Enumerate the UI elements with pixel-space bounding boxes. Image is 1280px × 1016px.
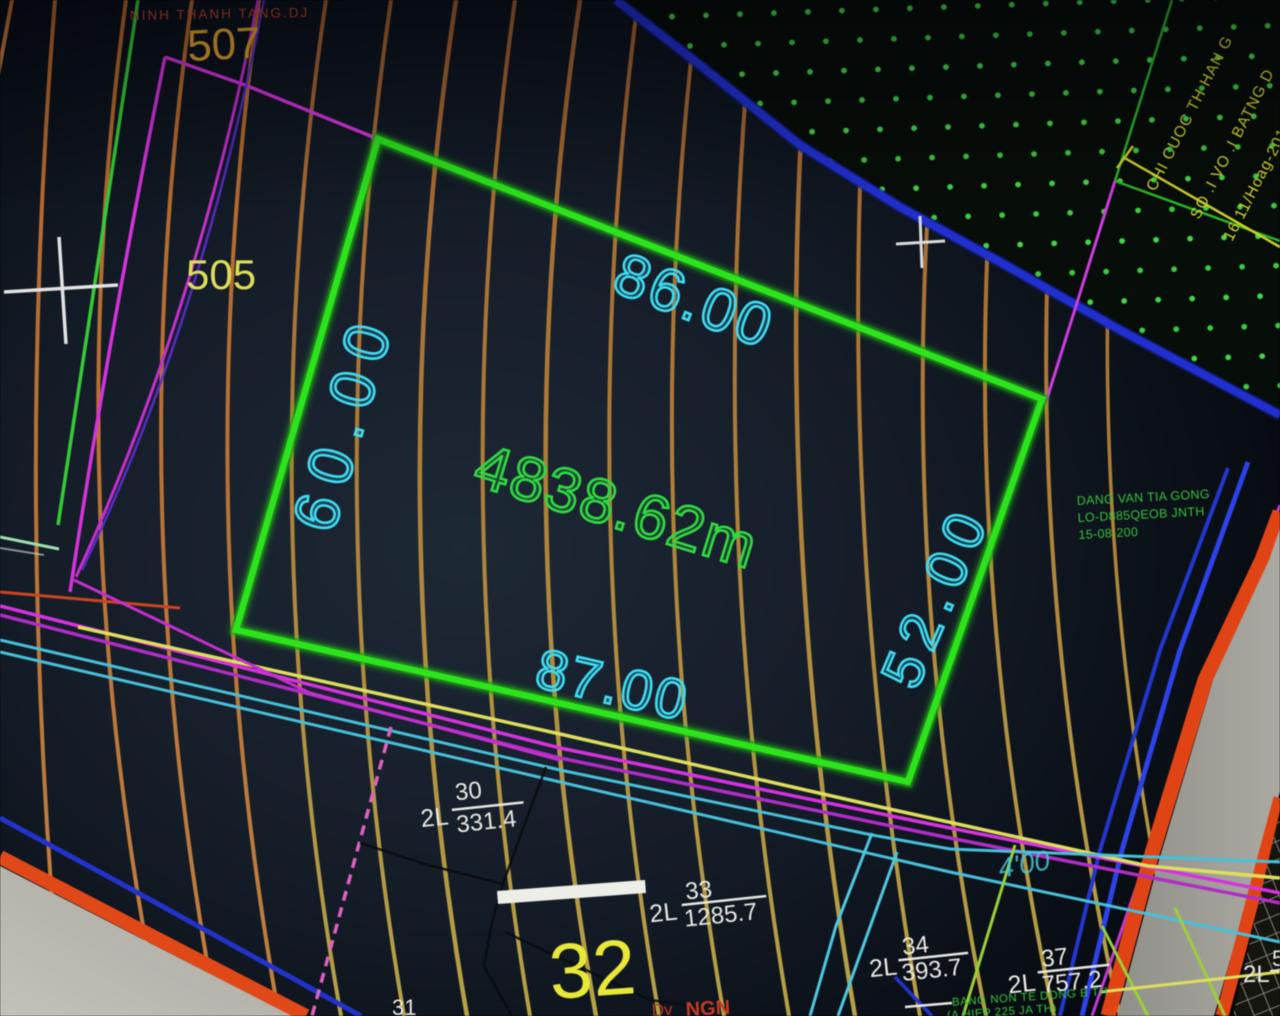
svg-text:NGN: NGN bbox=[685, 997, 731, 1016]
svg-text:2L: 2L bbox=[868, 952, 899, 983]
svg-text:2L: 2L bbox=[419, 802, 450, 833]
svg-text:31: 31 bbox=[392, 995, 416, 1016]
svg-text:Dv: Dv bbox=[651, 1000, 673, 1016]
svg-text:505: 505 bbox=[186, 251, 256, 298]
svg-text:30: 30 bbox=[454, 777, 483, 807]
svg-text:32: 32 bbox=[546, 922, 639, 1016]
svg-text:2L: 2L bbox=[1243, 961, 1270, 988]
svg-text:5: 5 bbox=[1272, 946, 1280, 971]
svg-text:2L: 2L bbox=[648, 898, 679, 929]
